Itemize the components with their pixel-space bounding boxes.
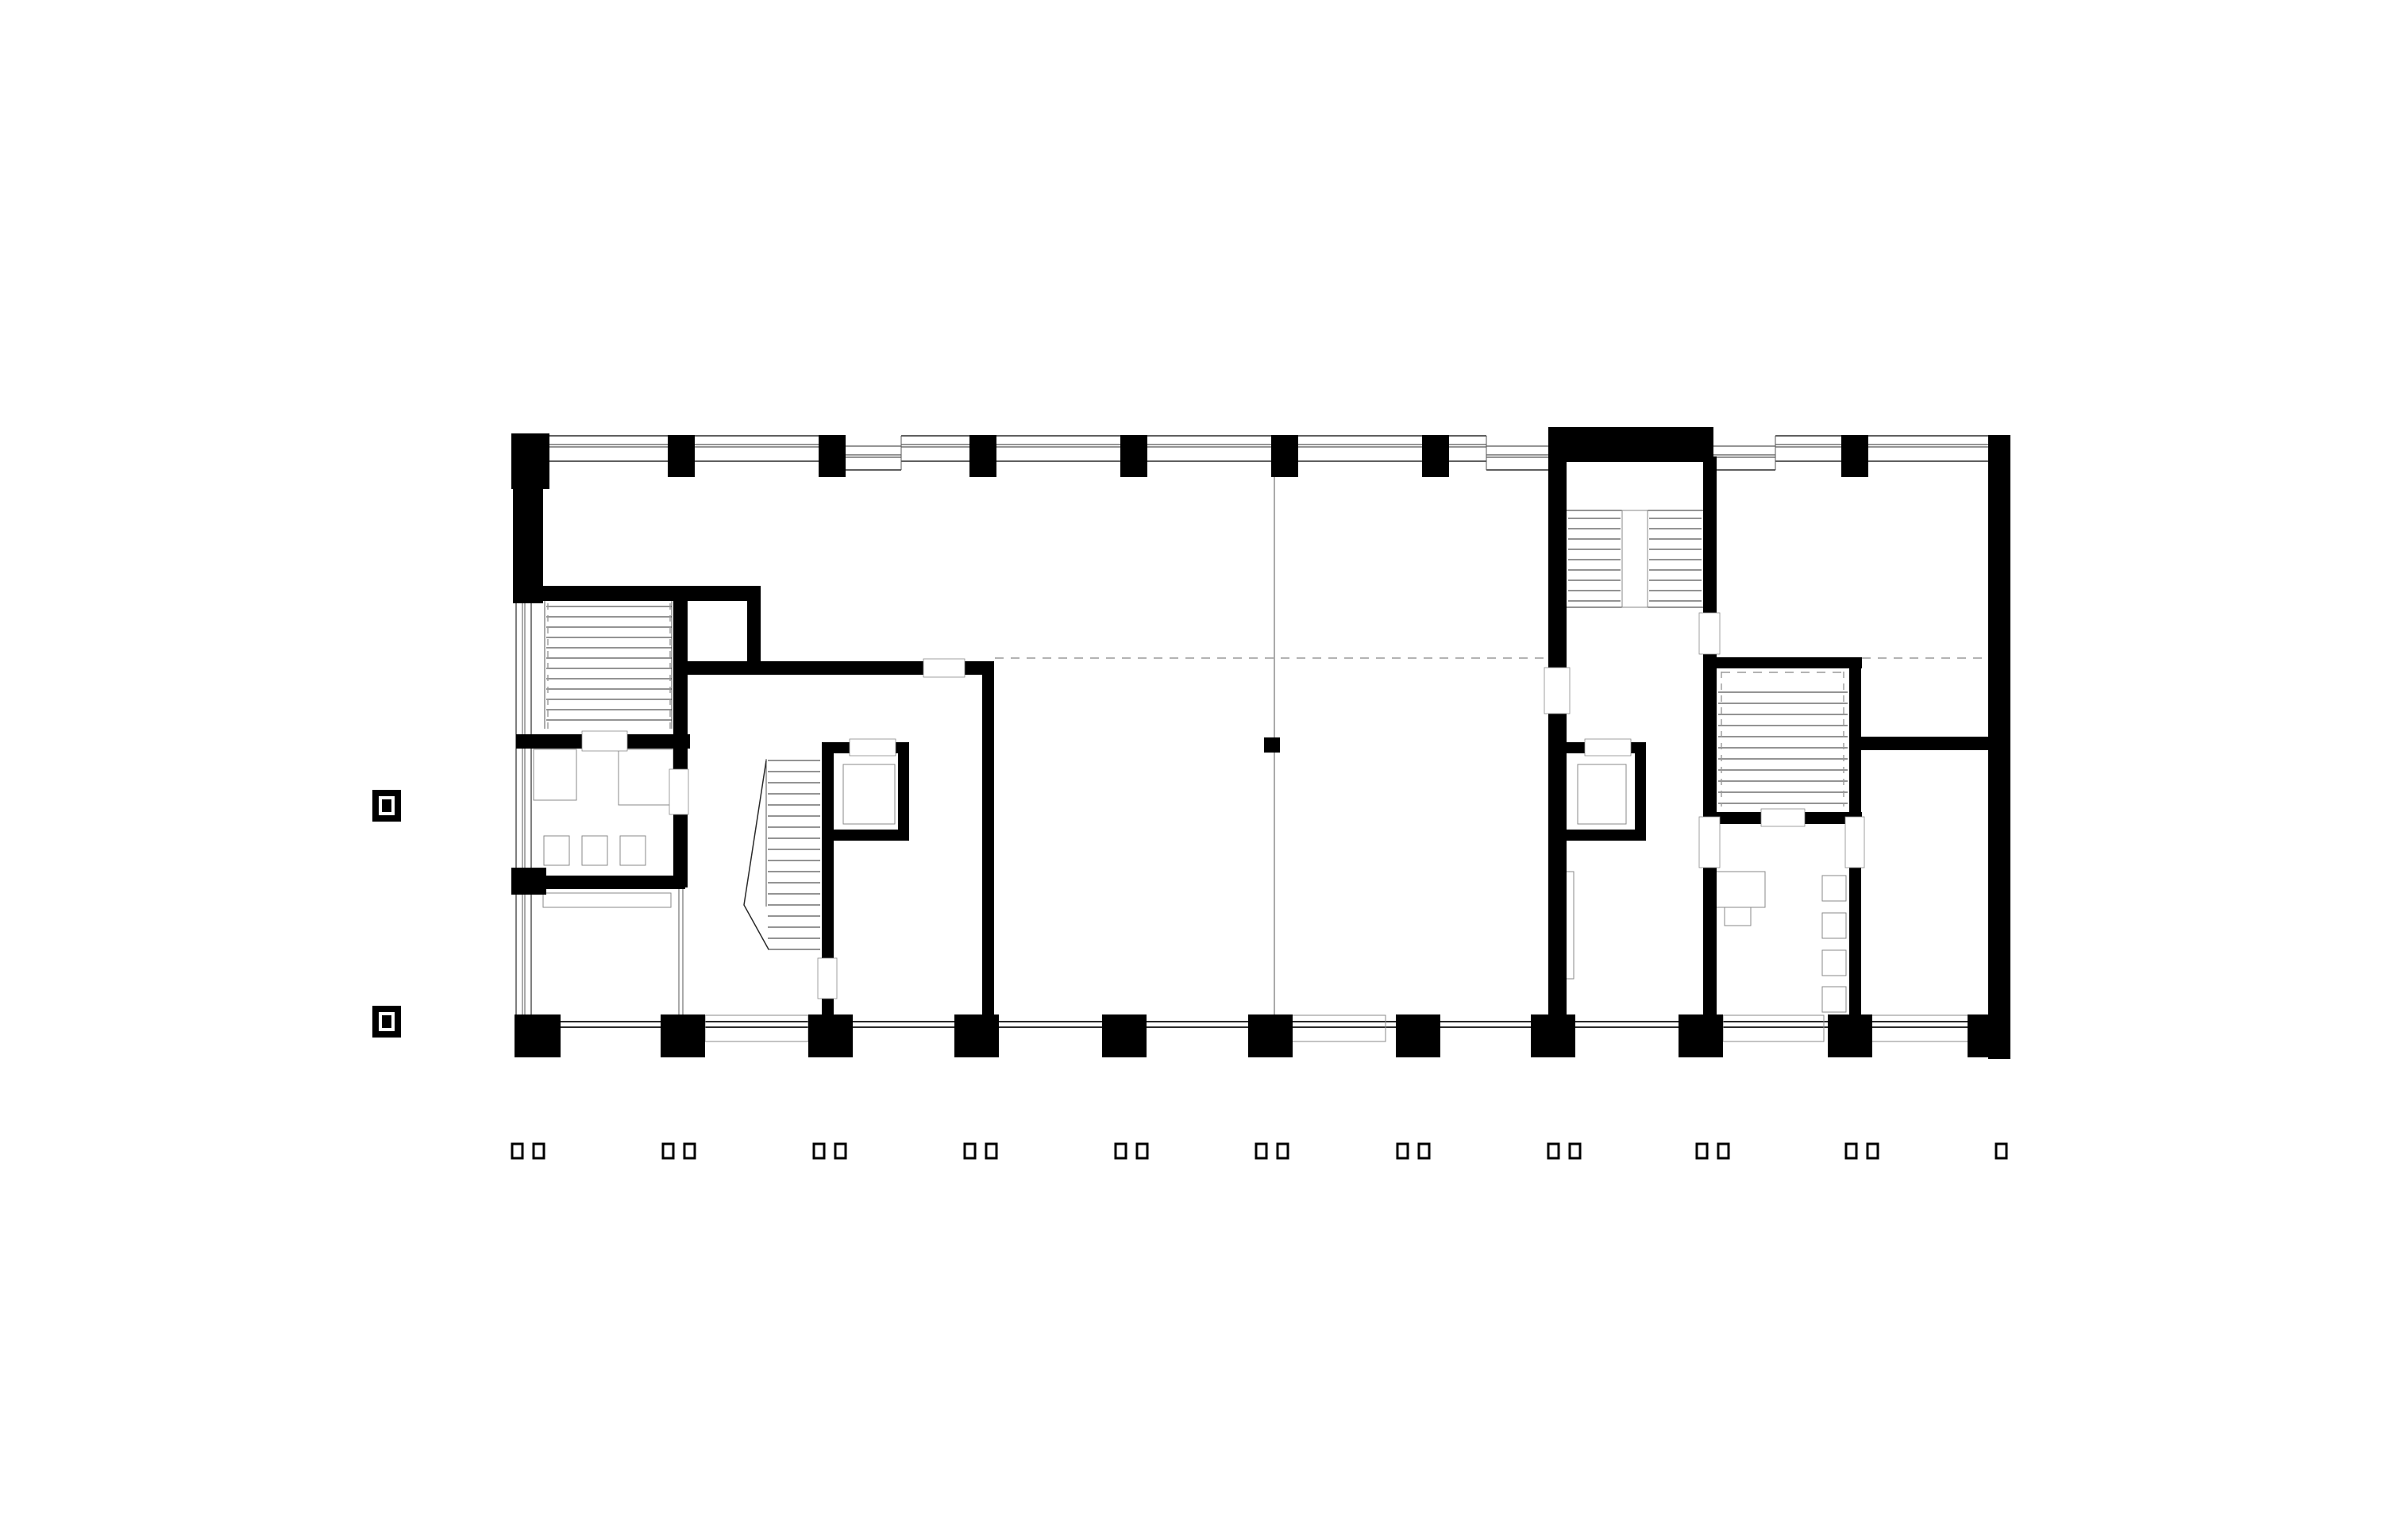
- wall-segment: [1703, 456, 1717, 618]
- grid-marker: [1867, 1144, 1878, 1158]
- grid-marker: [1278, 1144, 1288, 1158]
- wall-segment: [1102, 1014, 1147, 1057]
- door-opening: [923, 659, 965, 677]
- floor-plan-sheet: [0, 0, 2382, 1540]
- wall-segment: [808, 1014, 853, 1057]
- grid-marker: [534, 1144, 544, 1158]
- wall-segment: [819, 435, 846, 477]
- fixture-outline: [1822, 950, 1846, 976]
- wall-segment: [661, 1014, 705, 1057]
- wall-segment: [1629, 742, 1646, 753]
- wall-segment: [1828, 1014, 1872, 1057]
- door-opening: [1699, 613, 1720, 654]
- fixture-outline: [1723, 1015, 1824, 1041]
- wall-segment: [894, 742, 909, 753]
- grid-marker: [835, 1144, 846, 1158]
- wall-segment: [1849, 668, 1861, 822]
- grid-marker: [965, 1144, 975, 1158]
- grid-marker: [684, 1144, 695, 1158]
- wall-segment: [1548, 460, 1567, 671]
- grid-marker: [1996, 1144, 2006, 1158]
- floor-plan-drawing: [0, 0, 2382, 1540]
- wall-segment: [516, 586, 761, 601]
- fixture-outline: [1822, 876, 1846, 901]
- grid-marker: [1697, 1144, 1707, 1158]
- wall-segment: [822, 742, 834, 830]
- wall-segment: [1548, 427, 1713, 462]
- wall-segment: [668, 435, 695, 477]
- wall-segment: [1548, 712, 1567, 1018]
- wall-segment: [1841, 435, 1868, 477]
- grid-marker: [1846, 1144, 1856, 1158]
- wall-segment: [822, 830, 909, 841]
- wall-segment: [1120, 435, 1147, 477]
- wall-segment: [1635, 753, 1646, 841]
- wall-segment: [1271, 435, 1298, 477]
- fixture-outline: [1279, 1015, 1386, 1041]
- grid-marker: [1397, 1144, 1408, 1158]
- wall-segment: [982, 661, 994, 1018]
- grid-marker: [1548, 1144, 1559, 1158]
- wall-segment: [1849, 867, 1861, 1018]
- door-opening: [1699, 817, 1720, 868]
- wall-segment: [1396, 1014, 1440, 1057]
- grid-marker: [512, 1144, 522, 1158]
- fixture-outline: [1715, 872, 1765, 907]
- wall-segment: [747, 601, 761, 663]
- grid-marker: [1116, 1144, 1126, 1158]
- wall-segment: [1679, 1014, 1723, 1057]
- section-marker-core: [382, 1015, 391, 1028]
- fixture-outline: [1871, 1015, 1972, 1041]
- section-marker-core: [382, 799, 391, 812]
- door-opening: [669, 769, 688, 814]
- grid-marker: [1419, 1144, 1429, 1158]
- grid-marker: [1137, 1144, 1147, 1158]
- grid-marker: [1718, 1144, 1729, 1158]
- fixture-outline: [1822, 987, 1846, 1012]
- fixture-outline: [543, 893, 671, 907]
- door-opening: [818, 958, 837, 999]
- wall-segment: [516, 876, 685, 889]
- stair-cut-line: [744, 760, 769, 949]
- door-opening: [582, 731, 627, 751]
- fixture-outline: [705, 1015, 808, 1041]
- fixture-outline: [1622, 510, 1648, 607]
- grid-marker: [1570, 1144, 1580, 1158]
- wall-segment: [969, 435, 996, 477]
- fixture-outline: [620, 836, 646, 865]
- wall-segment: [627, 734, 690, 749]
- fixture-outline: [544, 836, 569, 865]
- fixture-outline: [1725, 907, 1751, 926]
- door-opening: [1544, 668, 1570, 714]
- wall-segment: [515, 1014, 561, 1057]
- grid-marker: [1256, 1144, 1266, 1158]
- fixture-outline: [1578, 764, 1626, 824]
- fixture-outline: [582, 836, 607, 865]
- wall-segment: [1422, 435, 1449, 477]
- fixture-outline: [534, 749, 576, 800]
- grid-marker: [814, 1144, 824, 1158]
- fixture-outline: [843, 764, 895, 824]
- grid-marker: [986, 1144, 996, 1158]
- wall-segment: [822, 841, 834, 963]
- wall-segment: [898, 753, 909, 841]
- grid-marker: [663, 1144, 673, 1158]
- door-opening: [1761, 809, 1805, 826]
- fixture-outline: [1822, 913, 1846, 938]
- wall-segment: [1968, 1014, 2010, 1057]
- wall-segment: [1861, 737, 2010, 750]
- wall-segment: [673, 661, 923, 675]
- wall-segment: [954, 1014, 999, 1057]
- wall-segment: [513, 435, 543, 603]
- door-opening: [1845, 817, 1864, 868]
- wall-segment: [1264, 737, 1280, 753]
- wall-segment: [1567, 830, 1646, 841]
- door-opening: [1585, 739, 1631, 756]
- wall-segment: [1703, 867, 1717, 1018]
- fixture-outline: [619, 749, 673, 805]
- wall-segment: [1248, 1014, 1293, 1057]
- wall-segment: [1703, 654, 1717, 822]
- wall-segment: [1531, 1014, 1575, 1057]
- wall-segment: [516, 734, 582, 749]
- wall-segment: [1703, 657, 1862, 668]
- door-opening: [850, 739, 896, 756]
